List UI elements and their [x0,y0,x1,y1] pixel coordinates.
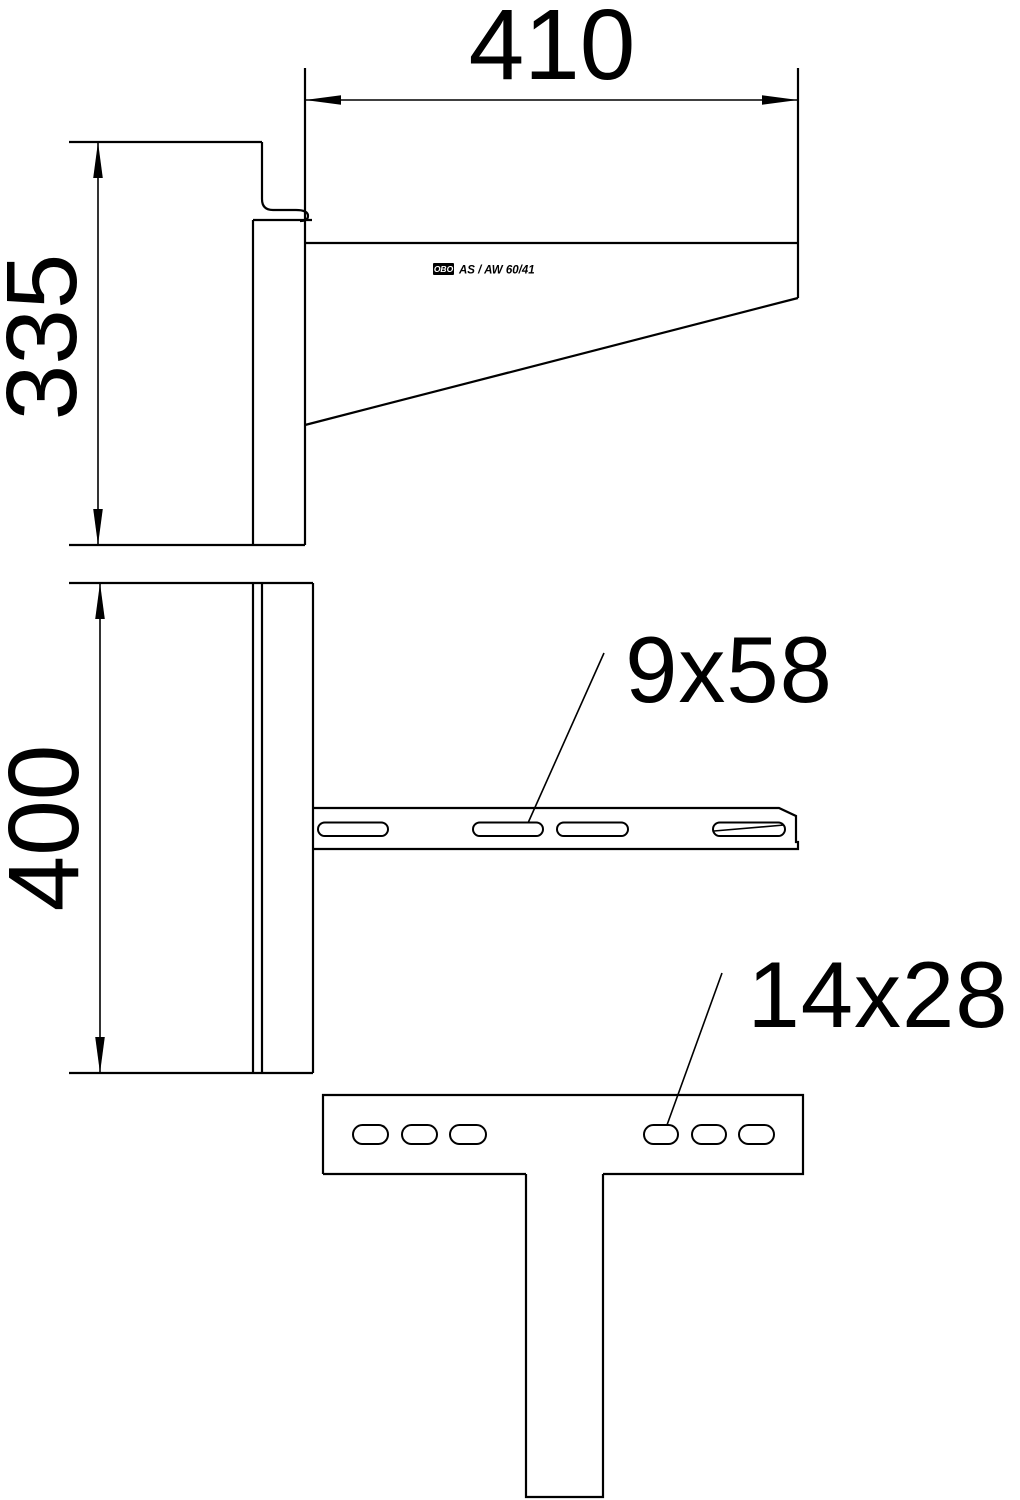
arm-slot-3 [557,823,628,837]
dimension-bracket-height: 335 [0,142,103,545]
mounting-hook-profile [262,142,308,221]
plate-slot-5 [692,1125,726,1144]
callout-14x28-leader [667,973,722,1125]
arm-sloped-underside [305,298,798,425]
top-view [323,1095,803,1497]
plate-slot-2 [402,1125,437,1144]
technical-drawing-page: OBO AS / AW 60/41 410 335 [0,0,1020,1500]
dim-400-arrow-bottom [95,1037,105,1073]
dim-335-arrow-bottom [93,509,103,545]
plate-slot-4 [644,1125,678,1144]
arm-slot-1 [318,823,388,837]
callout-plate-slot: 14x28 [667,942,1009,1125]
arm-slot-4 [713,823,785,837]
product-stamp: OBO AS / AW 60/41 [433,263,535,277]
callout-14x28-label: 14x28 [747,942,1008,1047]
callout-9x58-label: 9x58 [625,617,833,722]
dim-410-label: 410 [469,0,636,101]
plate-slot-1 [353,1125,388,1144]
dimension-arm-length: 410 [305,0,798,105]
dim-400-arrow-top [95,583,105,619]
dim-410-arrow-left [305,95,341,105]
dim-400-label: 400 [0,745,100,912]
plate-slot-3 [450,1125,486,1144]
slotted-arm-outline [313,808,798,849]
head-plate-outline [323,1095,803,1174]
bracket-drawing-canvas: OBO AS / AW 60/41 410 335 [0,0,1020,1500]
arm-plan-outline [526,1174,603,1497]
arm-slot-4-edge-line [714,825,784,831]
stamp-model-label: AS / AW 60/41 [458,265,535,277]
dim-335-label: 335 [0,254,98,421]
arm-slot-2 [473,823,543,837]
dimension-plate-height: 400 [0,583,105,1073]
upper-side-view: OBO AS / AW 60/41 [69,68,798,545]
stamp-logo-label: OBO [434,264,454,274]
callout-arm-slot: 9x58 [528,617,833,823]
dim-335-arrow-top [93,142,103,178]
callout-9x58-leader [528,653,604,823]
dim-410-arrow-right [762,95,798,105]
plate-slot-6 [739,1125,774,1144]
